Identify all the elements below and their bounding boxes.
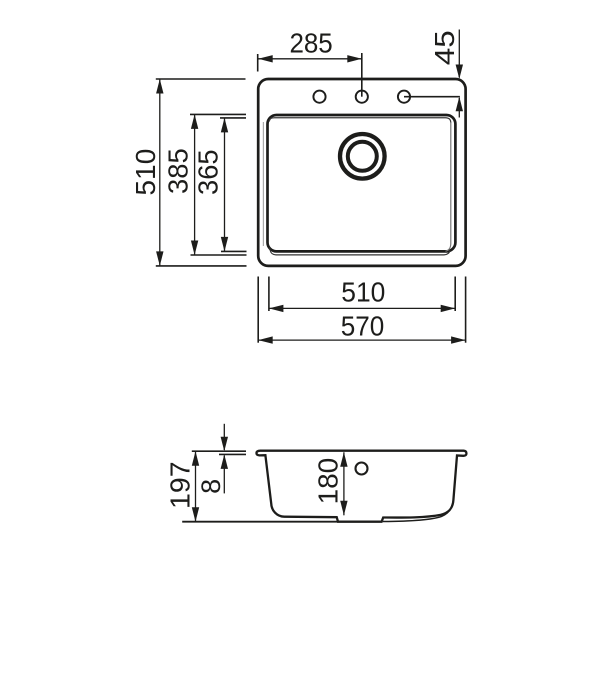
svg-text:197: 197 bbox=[165, 461, 196, 509]
svg-text:45: 45 bbox=[429, 30, 460, 65]
svg-text:180: 180 bbox=[312, 458, 343, 505]
svg-text:510: 510 bbox=[130, 149, 161, 196]
svg-text:8: 8 bbox=[196, 479, 226, 494]
svg-text:510: 510 bbox=[341, 276, 385, 307]
svg-text:570: 570 bbox=[341, 310, 385, 341]
svg-text:285: 285 bbox=[289, 27, 332, 58]
svg-text:385: 385 bbox=[162, 148, 193, 194]
svg-text:365: 365 bbox=[192, 149, 223, 195]
